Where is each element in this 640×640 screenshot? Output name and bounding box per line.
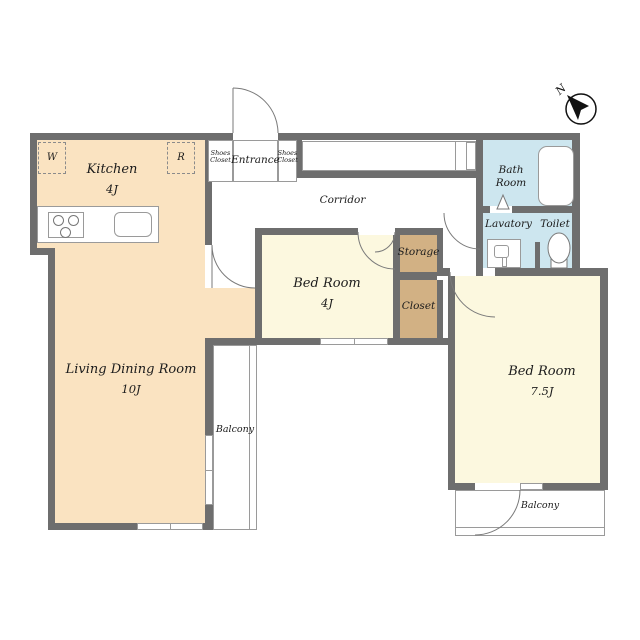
wall — [495, 268, 608, 276]
shoes-closet-right-label: Shoes Closet — [276, 150, 299, 164]
bath-name-line2: Room — [496, 177, 527, 189]
wall — [395, 228, 443, 235]
kitchen-label: Kitchen 4J — [52, 158, 172, 197]
closet-label: Closet — [397, 300, 440, 313]
bath-name-line1: Bath — [499, 164, 524, 176]
wall — [255, 338, 320, 345]
wall — [398, 272, 437, 280]
living-name: Living Dining Room — [66, 362, 197, 377]
cabinet-divider-line — [455, 141, 456, 171]
lavatory-label: Lavatory — [481, 218, 536, 231]
wall — [278, 133, 580, 140]
bath-label: Bath Room — [488, 164, 534, 189]
wall — [30, 248, 55, 255]
wall — [543, 483, 608, 490]
balcony-left-rail-line — [249, 345, 250, 530]
window-mullion — [354, 338, 355, 345]
bedroom-large-size: 7.5J — [531, 384, 554, 398]
balcony-bottom-label: Balcony — [508, 500, 572, 511]
living-dining-floor-extension — [205, 288, 255, 345]
wall — [600, 268, 608, 490]
entrance-label: Entrance — [231, 154, 280, 167]
bedroom-large-name: Bed Room — [508, 364, 575, 379]
bath-window — [466, 142, 476, 170]
living-label: Living Dining Room 10J — [56, 358, 206, 397]
balcony-left-label: Balcony — [211, 424, 259, 435]
wall — [448, 483, 475, 490]
bathtub — [538, 146, 574, 206]
window-mullion — [205, 470, 213, 471]
wall — [302, 170, 476, 178]
bedroom-large-window — [520, 483, 543, 490]
wall — [255, 235, 262, 345]
shoes-left-line2: Closet — [210, 156, 231, 164]
window-mullion — [170, 523, 171, 530]
north-arrow-needle — [567, 95, 589, 120]
wall — [30, 133, 233, 140]
north-arrow — [566, 94, 596, 124]
storage-label: Storage — [397, 246, 440, 259]
wall — [48, 523, 137, 530]
wall — [205, 505, 213, 530]
wall — [476, 140, 483, 276]
living-size: 10J — [121, 382, 140, 396]
kitchen-size: 4J — [106, 182, 118, 196]
bedroom-small-size: 4J — [321, 296, 333, 310]
toilet-label: Toilet — [537, 218, 573, 231]
wall — [205, 338, 262, 345]
bedroom-large-label: Bed Room 7.5J — [487, 360, 597, 399]
living-door-arc — [212, 245, 255, 288]
wall — [512, 206, 576, 213]
wall — [443, 268, 450, 276]
floor-plan: W R — [0, 0, 640, 640]
stove-burner — [53, 215, 64, 226]
stove-burner — [60, 227, 71, 238]
balcony-bottom — [455, 490, 605, 536]
wall — [483, 206, 490, 213]
wall — [535, 242, 540, 268]
washbasin-tap — [502, 257, 507, 267]
entrance-door-arc — [233, 88, 278, 133]
corridor-cabinet — [302, 141, 476, 171]
kitchen-sink — [114, 212, 152, 237]
balcony-left — [213, 345, 257, 530]
shoes-right-line2: Closet — [277, 156, 298, 164]
wall — [30, 140, 37, 255]
wall — [48, 255, 55, 530]
lavatory-door-arc — [444, 213, 480, 249]
kitchen-name: Kitchen — [87, 162, 138, 177]
wall — [255, 228, 358, 235]
corridor-label: Corridor — [300, 194, 385, 207]
bedroom-small-name: Bed Room — [293, 276, 360, 291]
north-arrow-circle — [566, 94, 596, 124]
stove-burner — [68, 215, 79, 226]
north-label: N — [553, 81, 569, 97]
balcony-bottom-rail-line — [455, 527, 605, 528]
shoes-closet-left-label: Shoes Closet — [207, 150, 234, 164]
wall — [205, 345, 213, 435]
wall — [448, 276, 455, 490]
wall — [393, 338, 455, 345]
bedroom-small-label: Bed Room 4J — [272, 272, 382, 311]
